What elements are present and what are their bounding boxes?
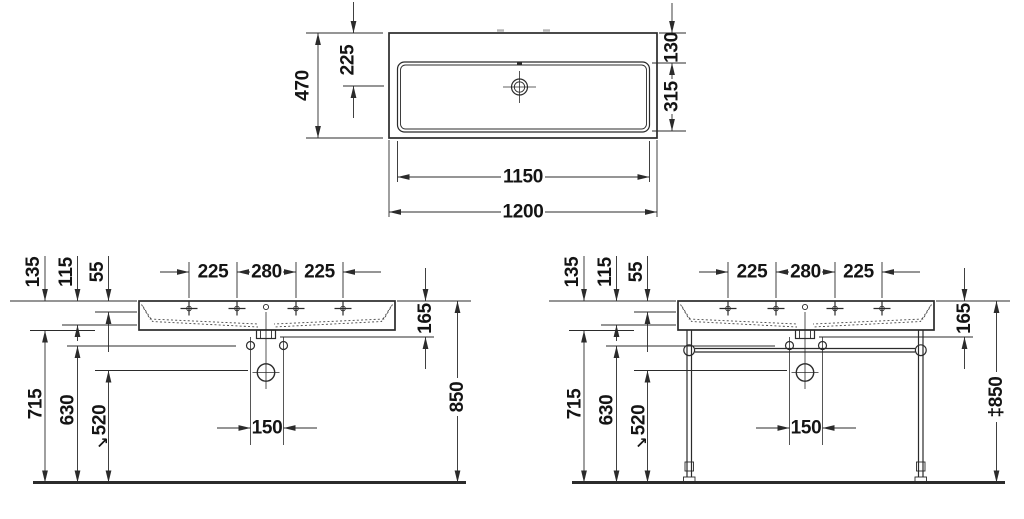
- dim-label-h-fixing-holes: 630: [597, 395, 618, 426]
- dim-label-tap-spacing-left: 225: [198, 262, 230, 283]
- dim-label-tap-spacing-right: 225: [843, 262, 875, 283]
- dim-label-tap-spacing-right: 225: [304, 262, 336, 283]
- dim-label-height-55: 55: [87, 261, 108, 282]
- dim-label-inner-width: 1150: [503, 167, 543, 188]
- dim-label-outlet-detail: 165: [954, 302, 975, 334]
- dim-label-h-outlet: 520: [629, 405, 650, 436]
- bowl-rim-inner: [401, 65, 647, 129]
- dimension-linework: [10, 256, 471, 483]
- dim-label-height-115: 115: [56, 256, 77, 286]
- drain-symbol: [503, 71, 536, 103]
- dim-label-bowl-inner-depth: 315: [662, 80, 683, 112]
- plan-view: 470 225 130 315 1150 1200: [293, 2, 687, 223]
- dim-label-rear-deck: 130: [662, 32, 683, 63]
- dim-label-overall-depth: 470: [293, 70, 314, 101]
- dim-label-h-basin-bottom: 715: [565, 388, 586, 420]
- outlet-direction-icon: ↘: [633, 437, 651, 450]
- dim-label-h-basin-bottom: 715: [26, 388, 47, 420]
- dim-label-h-outlet: 520: [90, 405, 111, 436]
- dim-label-height-135: 135: [23, 256, 44, 288]
- dim-label-overall-width: 1200: [502, 202, 543, 223]
- dim-label-outlet-detail: 165: [415, 302, 436, 334]
- dim-label-height-55: 55: [626, 261, 647, 282]
- technical-drawing-canvas: 470 225 130 315 1150 1200 225 280 225: [0, 0, 1024, 519]
- dim-label-tap-spacing-mid: 280: [251, 262, 282, 283]
- outlet-direction-icon: ↘: [94, 437, 112, 450]
- dim-label-height-115: 115: [595, 256, 616, 286]
- dim-label-h-fixing-holes: 630: [58, 395, 79, 426]
- dim-label-drain-from-rear: 225: [338, 44, 359, 76]
- technical-drawing-page: 470 225 130 315 1150 1200 225 280 225: [0, 0, 1024, 519]
- dim-label-tap-spacing-mid: 280: [790, 262, 821, 283]
- dimension-linework: [549, 256, 1010, 483]
- dim-label-fixing-spacing: 150: [791, 418, 822, 439]
- front-view-wall: 225 280 225 135 115 55 165 715 630 520 ↘…: [10, 256, 471, 483]
- dim-label-h-rim-adjustable: ‡850: [986, 376, 1007, 417]
- dim-label-fixing-spacing: 150: [252, 418, 283, 439]
- front-view-console: 225 280 225 135 115 55 165 715 630 520 ↘…: [549, 256, 1010, 483]
- dim-label-h-rim: 850: [447, 382, 468, 413]
- overflow-mark: [517, 62, 522, 66]
- basin-plan-outline: [389, 33, 657, 138]
- dim-label-tap-spacing-left: 225: [737, 262, 769, 283]
- dim-label-height-135: 135: [562, 256, 583, 288]
- bowl-rim-outer: [398, 62, 650, 132]
